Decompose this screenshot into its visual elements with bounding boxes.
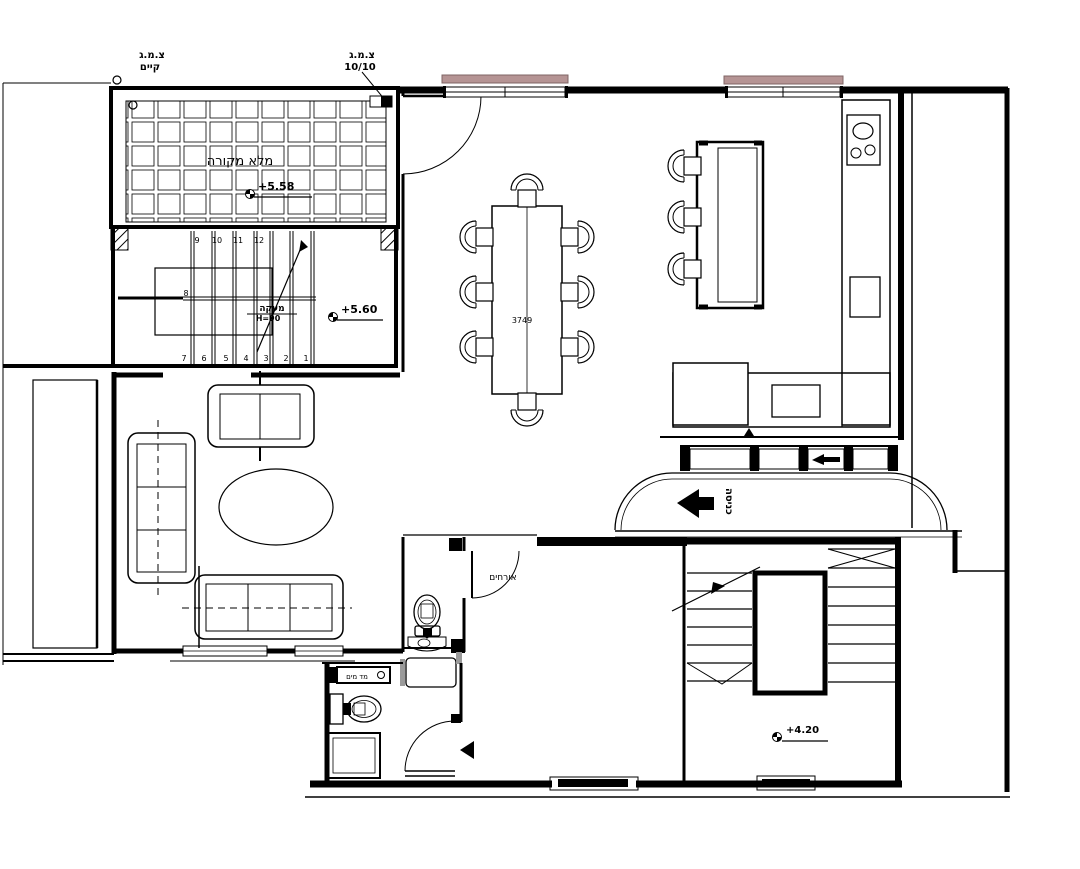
railing-label-1: מעקה: [259, 304, 284, 314]
niche-shade: [456, 652, 462, 664]
window-lintel: [442, 75, 568, 83]
stair-num: 9: [194, 236, 199, 245]
elevation-label: +4.20: [786, 725, 819, 736]
living-room: [33, 371, 403, 661]
drain-existing-icon: [113, 76, 121, 84]
sofa-cushions: [137, 444, 186, 572]
pier: [844, 446, 853, 471]
stair-num: 8: [183, 289, 188, 298]
floor-plan-page: מלא מקורה +5.58 צ.מ.ג קיים צ.מ.ג 10/10 9…: [0, 0, 1080, 869]
porch-arch-outer: [615, 473, 947, 530]
wall-niche: [759, 449, 799, 469]
dining-chair: [561, 276, 594, 308]
oval-rug: [219, 469, 333, 545]
bath-door-arc: [405, 721, 455, 771]
guest-bathroom: אורחים מד מים: [325, 535, 687, 687]
north-mark-icon: [744, 428, 754, 436]
stair-num: 3: [263, 354, 268, 363]
wall-niche: [853, 449, 888, 469]
table-dimension: 3749: [512, 316, 532, 325]
toilet-seat: [421, 604, 433, 618]
elevation-label: +5.58: [258, 180, 294, 193]
stair-treads-right: [828, 549, 895, 682]
niche-arrow-icon: [812, 454, 840, 465]
door-hinge: [449, 538, 462, 551]
dining-chair: [460, 276, 493, 308]
burner-icon: [865, 145, 875, 155]
entrance-porch: כניסה: [615, 446, 1007, 573]
elevation-label: +5.60: [341, 303, 378, 316]
drain-existing-label-2: קיים: [140, 62, 160, 73]
stair-void: [755, 573, 825, 693]
dining-chair: [561, 331, 594, 363]
shower: [328, 733, 380, 778]
window-jamb: [725, 86, 728, 98]
benchmark-icon: [246, 190, 255, 199]
window-jamb: [565, 86, 568, 98]
floor-plan-canvas: מלא מקורה +5.58 צ.מ.ג קיים צ.מ.ג 10/10 9…: [0, 0, 1080, 869]
door-hinge: [451, 714, 461, 723]
stair-num: 11: [233, 236, 243, 245]
benchmark-icon: [329, 313, 338, 322]
entrance-arrow-icon: [677, 489, 714, 518]
toilet-tank: [330, 694, 343, 724]
kitchen-island: [697, 142, 763, 308]
dining-chair: [460, 331, 493, 363]
pier: [888, 446, 898, 471]
kitchen-counter-right: [842, 100, 890, 425]
hall-north-wall: [537, 537, 687, 546]
dining-chair: [460, 221, 493, 253]
porch-arch-inner: [621, 479, 941, 530]
fridge: [673, 363, 748, 425]
sofa-cushion-divider: [137, 487, 186, 530]
stair-num: 10: [212, 236, 222, 245]
pergola-label: מלא מקורה: [207, 154, 273, 169]
property-line-left: [3, 83, 111, 665]
column-pier: [451, 639, 465, 653]
pier: [799, 446, 808, 471]
kitchen: [660, 88, 901, 440]
drain-new-label-2: 10/10: [344, 62, 376, 73]
bath-door-leaf: [405, 771, 455, 776]
hall-window: [558, 779, 628, 787]
island-countertop: [718, 148, 757, 302]
upper-staircase: 9 10 11 12 8 7 6 5 4 3 2 1 מעקה H=90 +5.…: [113, 227, 396, 366]
stair-arrow-icon: [711, 582, 725, 594]
stair-num: 4: [243, 354, 248, 363]
pier: [680, 446, 690, 471]
entrance-label: כניסה: [723, 488, 734, 515]
meter-dial-icon: [378, 672, 385, 679]
burner-icon: [853, 123, 873, 139]
door-swing-arc: [403, 96, 481, 174]
stair-num: 2: [283, 354, 288, 363]
drain-new-label-1: צ.מ.ג: [349, 50, 375, 61]
meter-label: מד מים: [346, 673, 368, 681]
wall-niche: [690, 449, 750, 469]
appliance: [772, 385, 820, 417]
wall-left-lower: [3, 654, 114, 661]
stair-num: 1: [303, 354, 308, 363]
sink-bowl: [418, 639, 430, 647]
railing-label-2: H=90: [256, 314, 281, 323]
shower-inner: [333, 738, 375, 773]
stair-num: 6: [201, 354, 206, 363]
kitchen-sink: [850, 277, 880, 317]
stair-window: [762, 779, 810, 787]
stair-num: 12: [254, 236, 264, 245]
dining-chair: [511, 174, 543, 207]
burner-icon: [851, 148, 861, 158]
stair-landing-line: [183, 297, 316, 300]
benchmark-icon: [773, 733, 782, 742]
faucet-icon: [426, 636, 429, 639]
pier: [750, 446, 759, 471]
ac-niche: [406, 658, 456, 687]
dining-chair: [561, 221, 594, 253]
stair-num: 5: [223, 354, 228, 363]
stair-arrow-icon: [299, 240, 308, 252]
window-lintel: [724, 76, 843, 84]
dining-chair: [511, 393, 543, 426]
window-jamb: [443, 86, 446, 98]
drain-existing-label-1: צ.מ.ג: [139, 50, 165, 61]
sofa-three-seat-bottom: [195, 575, 343, 639]
stair-treads-left: [687, 573, 752, 681]
pergola-area: מלא מקורה +5.58 צ.מ.ג קיים צ.מ.ג 10/10: [111, 50, 398, 250]
toilet-seat: [354, 703, 365, 715]
stair-num: 7: [181, 354, 186, 363]
balcony: [33, 380, 97, 648]
swing-arrow-icon: [460, 741, 474, 759]
guests-label: אורחים: [489, 573, 516, 583]
stair-diagonal-right: [828, 549, 895, 568]
sofa-three-seat-left: [128, 433, 195, 583]
lower-staircase: +4.20: [672, 537, 898, 790]
window-jamb: [840, 86, 843, 98]
island-corner-marks: [699, 143, 762, 307]
